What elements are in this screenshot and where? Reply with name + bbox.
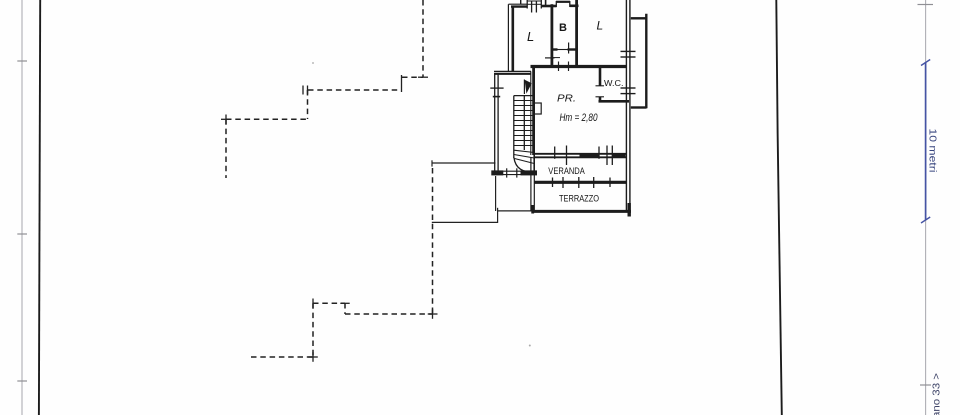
- svg-text:piano 33 >: piano 33 >: [932, 373, 943, 415]
- svg-text:L: L: [597, 19, 604, 33]
- svg-text:Hm = 2,80: Hm = 2,80: [560, 112, 599, 124]
- svg-text:PR.: PR.: [557, 94, 576, 105]
- svg-text:W.C.: W.C.: [604, 78, 624, 88]
- svg-text:L: L: [527, 29, 534, 44]
- svg-text:VERANDA: VERANDA: [548, 166, 585, 176]
- svg-text:10 metri: 10 metri: [926, 129, 938, 173]
- svg-text:TERRAZZO: TERRAZZO: [559, 194, 599, 204]
- svg-text:B: B: [559, 22, 567, 34]
